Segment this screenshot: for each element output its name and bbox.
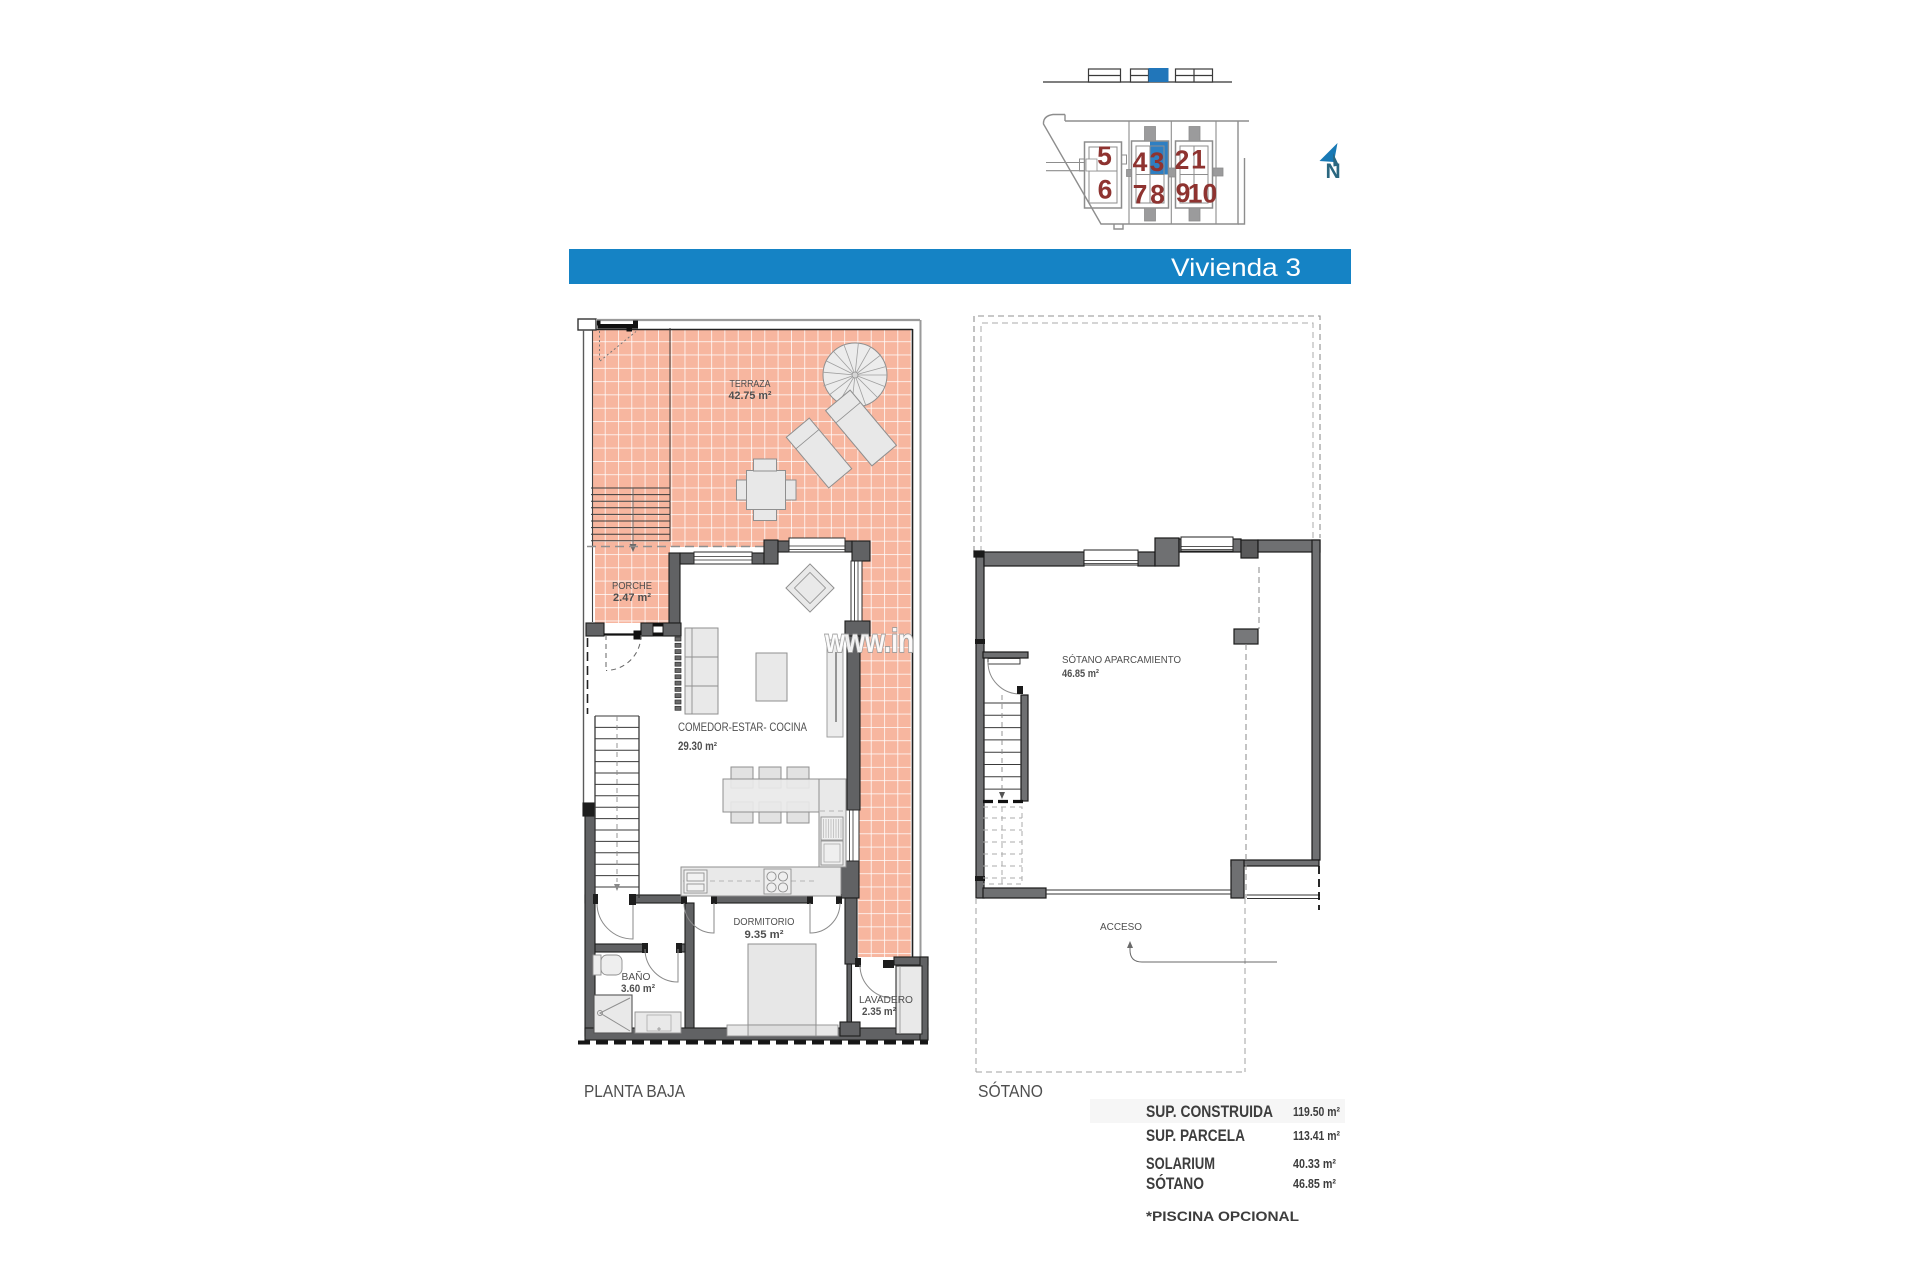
svg-text:46.85 m²: 46.85 m²: [1062, 668, 1099, 680]
svg-text:2.47 m²: 2.47 m²: [613, 592, 651, 604]
svg-text:SUP. PARCELA: SUP. PARCELA: [1146, 1126, 1245, 1145]
svg-text:4: 4: [1133, 147, 1148, 177]
svg-text:5: 5: [1097, 141, 1112, 171]
svg-text:N: N: [1326, 160, 1341, 183]
svg-text:10: 10: [1188, 179, 1217, 209]
svg-text:119.50 m²: 119.50 m²: [1293, 1105, 1340, 1119]
svg-text:9.35 m²: 9.35 m²: [745, 929, 784, 941]
svg-text:SÓTANO: SÓTANO: [978, 1080, 1043, 1101]
svg-text:6: 6: [1098, 175, 1113, 205]
svg-text:29.30 m²: 29.30 m²: [678, 741, 717, 753]
svg-text:BAÑO: BAÑO: [622, 970, 651, 983]
svg-text:SÓTANO: SÓTANO: [1146, 1174, 1204, 1193]
svg-text:SUP. CONSTRUIDA: SUP. CONSTRUIDA: [1146, 1102, 1273, 1121]
svg-text:SOLARIUM: SOLARIUM: [1146, 1154, 1215, 1173]
svg-text:*PISCINA OPCIONAL: *PISCINA OPCIONAL: [1146, 1209, 1299, 1224]
svg-text:Vivienda 3: Vivienda 3: [1171, 254, 1301, 282]
svg-text:DORMITORIO: DORMITORIO: [734, 916, 795, 928]
svg-text:2.35 m²: 2.35 m²: [862, 1006, 896, 1018]
svg-text:ACCESO: ACCESO: [1100, 921, 1142, 933]
svg-text:LAVADERO: LAVADERO: [859, 994, 913, 1006]
svg-text:PLANTA BAJA: PLANTA BAJA: [584, 1081, 685, 1101]
svg-text:2: 2: [1175, 145, 1190, 175]
svg-text:40.33 m²: 40.33 m²: [1293, 1157, 1336, 1171]
svg-text:113.41 m²: 113.41 m²: [1293, 1129, 1340, 1143]
svg-text:8: 8: [1150, 180, 1165, 210]
svg-text:3.60 m²: 3.60 m²: [621, 983, 655, 995]
svg-text:www.in: www.in: [824, 622, 914, 659]
svg-text:PORCHE: PORCHE: [612, 580, 652, 592]
svg-text:SÓTANO APARCAMIENTO: SÓTANO APARCAMIENTO: [1062, 653, 1181, 666]
svg-text:46.85 m²: 46.85 m²: [1293, 1177, 1336, 1191]
svg-text:COMEDOR-ESTAR- COCINA: COMEDOR-ESTAR- COCINA: [678, 722, 807, 734]
svg-text:42.75 m²: 42.75 m²: [729, 390, 772, 402]
svg-text:1: 1: [1191, 145, 1206, 175]
svg-text:TERRAZA: TERRAZA: [730, 378, 771, 390]
svg-text:3: 3: [1150, 147, 1165, 177]
svg-text:7: 7: [1133, 180, 1148, 210]
